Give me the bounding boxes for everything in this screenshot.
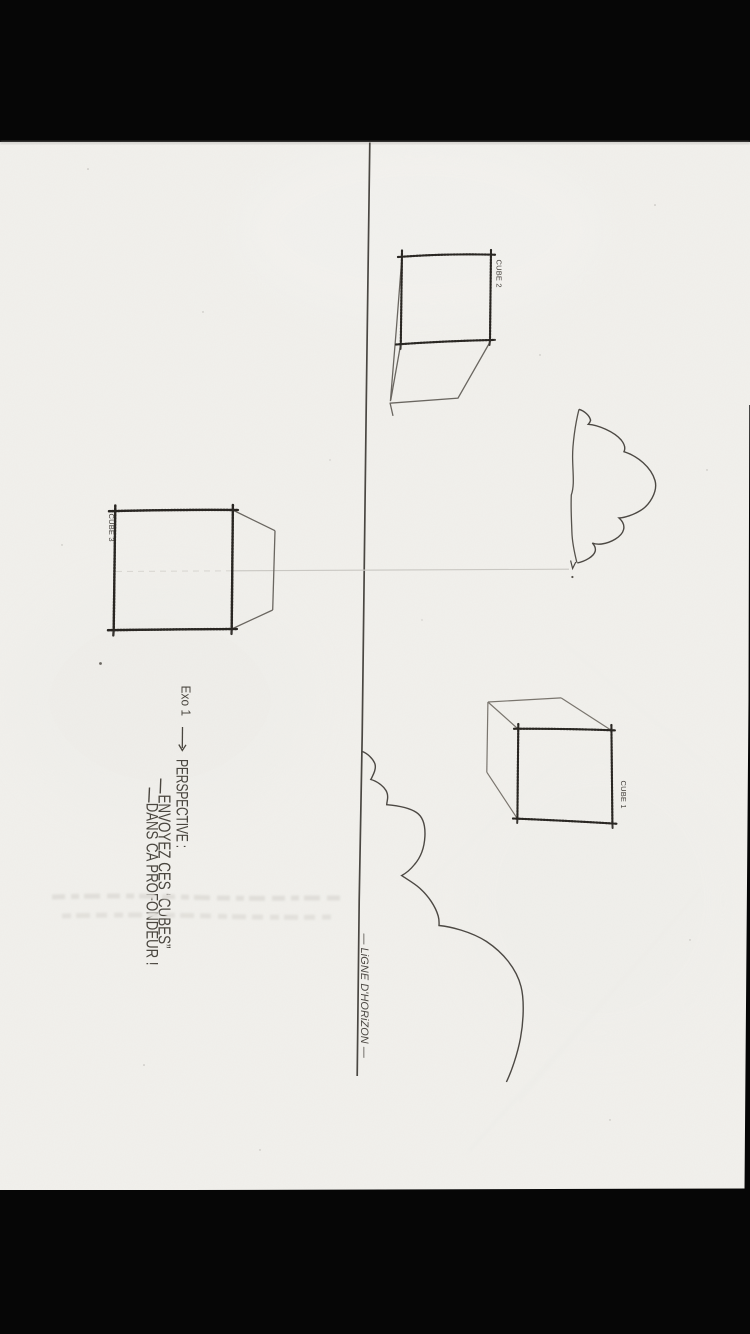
svg-text:CUBE 1: CUBE 1 — [619, 781, 628, 809]
svg-text:PERSPECTIVE :: PERSPECTIVE : — [172, 759, 190, 848]
svg-text:DANS CA PROFONDEUR !: DANS CA PROFONDEUR ! — [142, 803, 161, 966]
svg-text:— LiGNE D'HORiZON —: — LiGNE D'HORiZON — — [358, 933, 370, 1058]
svg-text:Exo 1: Exo 1 — [178, 686, 193, 717]
svg-text:CUBE 3: CUBE 3 — [107, 514, 116, 542]
svg-text:CUBE 2: CUBE 2 — [494, 260, 503, 288]
